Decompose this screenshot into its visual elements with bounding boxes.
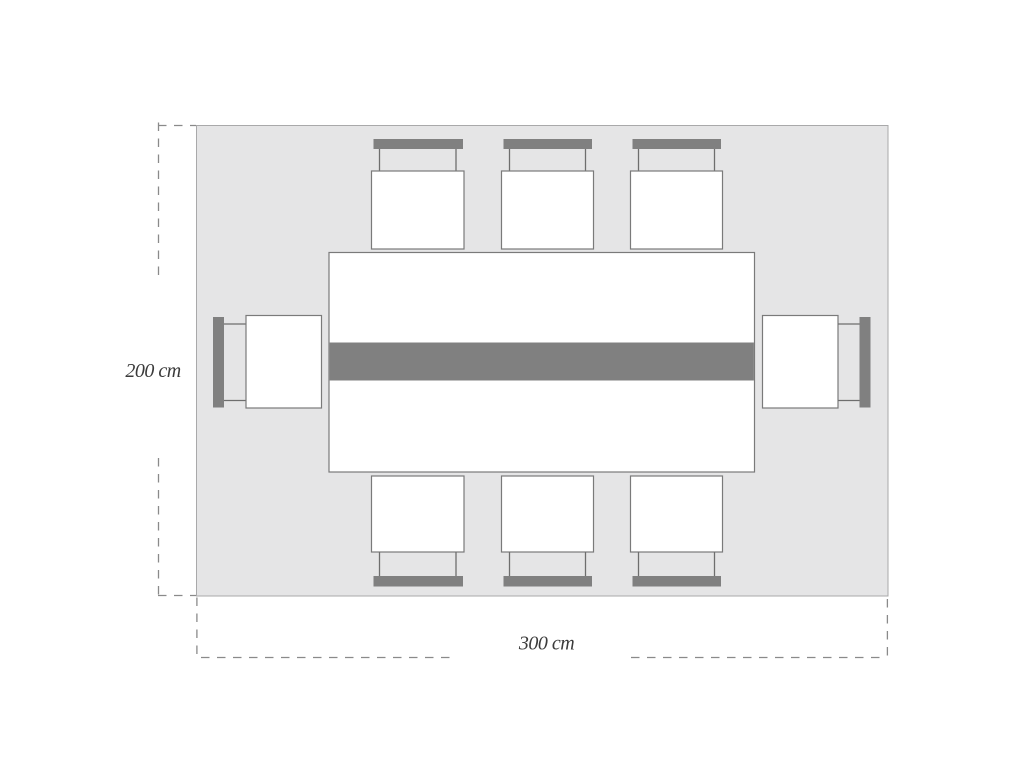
svg-text:300 cm: 300 cm — [518, 633, 574, 655]
svg-text:200 cm: 200 cm — [125, 360, 180, 382]
